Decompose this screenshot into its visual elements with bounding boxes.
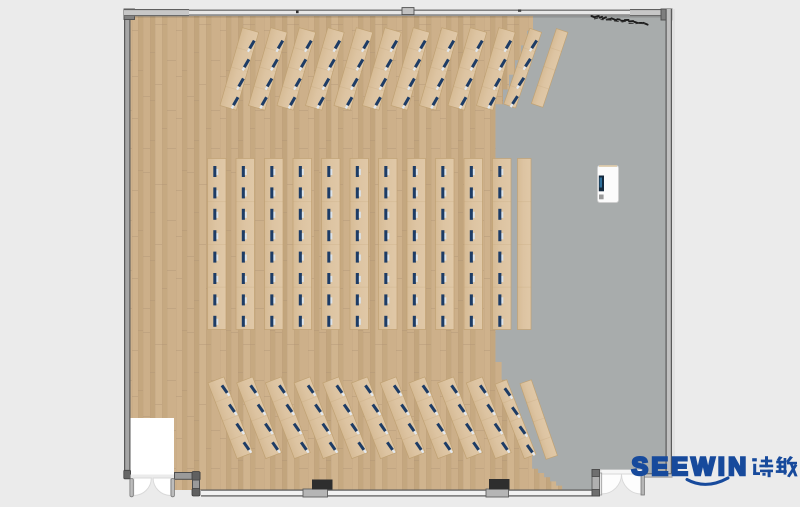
svg-text:SEEWIN: SEEWIN [632, 453, 750, 481]
